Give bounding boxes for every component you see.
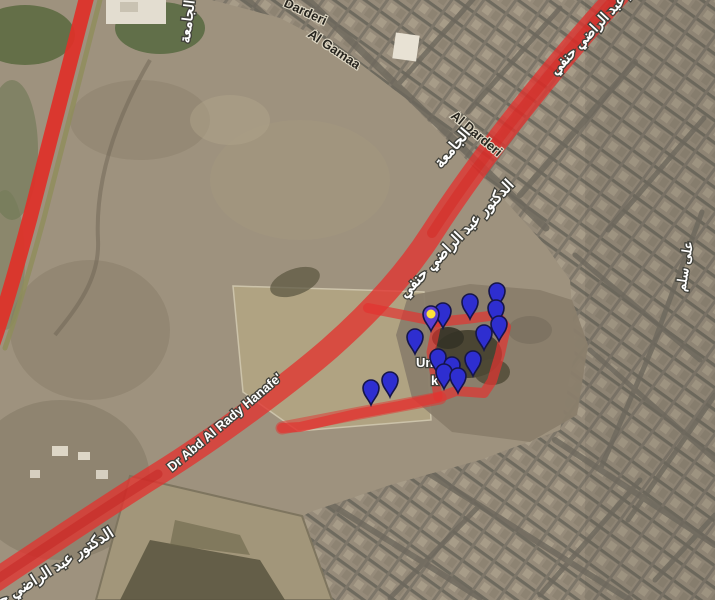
- satellite-map-viewport[interactable]: DarderiAl GamaaAl Darderiالجامعةالجامعةا…: [0, 0, 715, 600]
- satellite-map[interactable]: DarderiAl GamaaAl Darderiالجامعةالجامعةا…: [0, 0, 715, 600]
- pin-selected-dot: [427, 310, 436, 319]
